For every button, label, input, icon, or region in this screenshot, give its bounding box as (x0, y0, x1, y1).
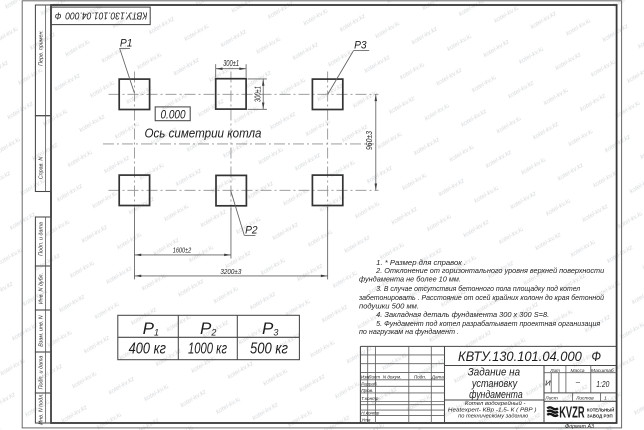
svg-text:КВТУ.130.101.04.000: КВТУ.130.101.04.000 (65, 9, 147, 20)
svg-text:3. В случае отсутствия бетонно: 3. В случае отсутствия бетонного пола пл… (376, 285, 580, 293)
svg-text:Задание на: Задание на (468, 366, 520, 378)
svg-text:0.000: 0.000 (161, 107, 186, 121)
svg-text:ЗАВОД РЭП: ЗАВОД РЭП (587, 413, 613, 418)
svg-text:Инв. N подл.: Инв. N подл. (39, 393, 45, 425)
svg-text:Подп. и дата: Подп. и дата (39, 356, 45, 390)
svg-text:Масштаб: Масштаб (591, 368, 614, 374)
svg-text:400 кг: 400 кг (129, 341, 167, 358)
svg-text:N докум.: N докум. (383, 375, 402, 380)
svg-text:5. Фундамент под котел разраба: 5. Фундамент под котел разрабатывает про… (376, 320, 600, 328)
svg-text:Взам. инв. N: Взам. инв. N (39, 315, 45, 347)
svg-text:Т.контр: Т.контр (361, 396, 379, 401)
svg-text:2. Отклонение от горизонтально: 2. Отклонение от горизонтального уровня … (375, 267, 604, 275)
svg-text:P1: P1 (120, 37, 133, 49)
svg-text:1600±2: 1600±2 (173, 246, 192, 255)
svg-text:300±1: 300±1 (223, 59, 239, 68)
svg-text:Пров.: Пров. (361, 388, 373, 393)
svg-text:KVZR: KVZR (559, 404, 585, 421)
svg-text:Лит: Лит (549, 368, 560, 374)
svg-text:3200±3: 3200±3 (220, 267, 242, 276)
svg-text:960±3: 960±3 (364, 131, 374, 150)
svg-text:забетонировать . Расстояние от: забетонировать . Расстояние от осей край… (358, 294, 604, 302)
svg-text:Перв. примен.: Перв. примен. (39, 30, 45, 66)
svg-text:–: – (575, 377, 581, 386)
svg-text:фундамента не более 10 мм.: фундамента не более 10 мм. (359, 275, 461, 283)
svg-text:500 кг: 500 кг (250, 341, 288, 358)
svg-text:Листов: Листов (575, 395, 594, 401)
svg-text:Справ. N: Справ. N (39, 157, 45, 180)
svg-text:Котел водогрейный -: Котел водогрейный - (465, 400, 526, 407)
svg-text:4. Закладная деталь фундамента: 4. Закладная деталь фундамента 300 x 300… (376, 311, 549, 319)
svg-text:Лист: Лист (367, 375, 380, 380)
svg-text:по нагрузкам на фундамент .: по нагрузкам на фундамент . (359, 328, 459, 336)
svg-text:Ф: Ф (55, 9, 62, 20)
svg-text:Ф: Ф (591, 349, 601, 364)
svg-text:Формат А3: Формат А3 (565, 424, 595, 430)
svg-text:1: 1 (604, 395, 607, 401)
svg-text:1:20: 1:20 (596, 380, 609, 389)
svg-text:P2: P2 (245, 225, 258, 237)
svg-text:1. * Размер для справок .: 1. * Размер для справок . (376, 259, 466, 267)
svg-text:300±1: 300±1 (254, 86, 263, 102)
svg-text:Масса: Масса (571, 368, 585, 374)
svg-text:КВТУ.130.101.04.000: КВТУ.130.101.04.000 (458, 349, 582, 364)
svg-text:Н.контр: Н.контр (361, 410, 380, 415)
svg-text:по техническому заданию: по техническому заданию (458, 413, 528, 419)
svg-text:Дата: Дата (431, 375, 445, 380)
svg-text:фундамента: фундамента (469, 389, 523, 401)
svg-text:Утв: Утв (361, 417, 371, 422)
svg-text:Ось симетрии котла: Ось симетрии котла (145, 125, 262, 140)
svg-text:Лист: Лист (544, 395, 557, 401)
svg-text:P3: P3 (354, 40, 367, 52)
svg-text:1000 кг: 1000 кг (188, 341, 227, 358)
svg-text:подушки 500 мм.: подушки 500 мм. (359, 303, 419, 311)
svg-text:Разраб.: Разраб. (361, 381, 378, 386)
svg-text:Инв. N дубл.: Инв. N дубл. (39, 273, 45, 304)
svg-text:Подп. и дата: Подп. и дата (39, 222, 45, 256)
svg-text:КОТЕЛЬНЫЙ: КОТЕЛЬНЫЙ (587, 408, 614, 413)
svg-text:И: И (545, 379, 551, 388)
svg-text:Подп.: Подп. (414, 375, 426, 380)
